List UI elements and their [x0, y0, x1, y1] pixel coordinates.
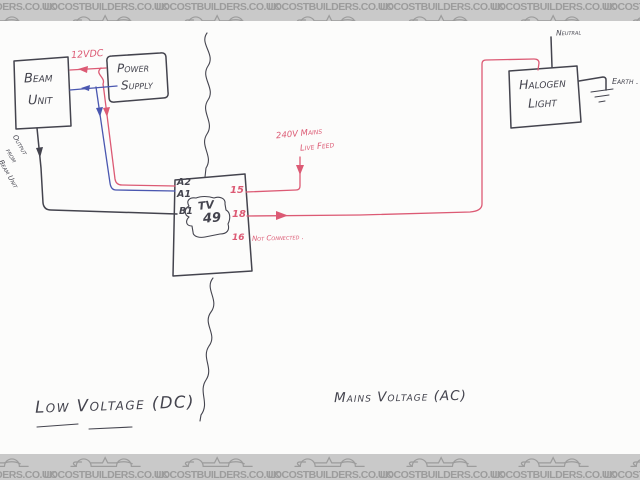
- relay-terminal-15: 15: [230, 186, 244, 196]
- arrowhead-coil-red: [103, 107, 110, 117]
- watermark-item: LOCOSTBUILDERS.CO.UK: [50, 454, 162, 480]
- relay-terminal-b1: B1: [179, 207, 193, 217]
- power-supply-label-line1: Power: [117, 61, 149, 74]
- arrowhead-beam-output: [36, 147, 43, 158]
- halogen-label-line1: Halogen: [519, 77, 566, 92]
- beam-unit-label-line2: Unit: [28, 94, 53, 108]
- watermark-text: LOCOSTBUILDERS.CO.UK: [268, 469, 392, 480]
- arrowhead-switched-live: [276, 211, 288, 220]
- underline-low: [37, 424, 78, 427]
- zone-mains-voltage-label: Mains Voltage (AC): [334, 390, 467, 406]
- car-icon: [176, 455, 260, 469]
- earth-label: Earth .: [612, 78, 639, 86]
- relay-terminal-18: 18: [232, 210, 246, 220]
- relay-logo-line2: 49: [203, 211, 222, 225]
- watermark-text: LOCOSTBUILDERS.CO.UK: [156, 469, 280, 480]
- arrowhead-12v-left: [78, 66, 88, 73]
- car-icon: [624, 455, 640, 469]
- watermark-item: LOCOSTBUILDERS.CO.UK: [498, 454, 610, 480]
- wire-coil-blue: [96, 87, 175, 191]
- separator-wavy-bottom: [200, 278, 214, 421]
- wire-earth: [579, 77, 606, 90]
- wire-beam-output: [37, 128, 177, 214]
- supply-voltage-label: 12VDC: [71, 49, 104, 61]
- relay-terminal-16: 16: [232, 234, 245, 243]
- underline-voltage: [89, 427, 132, 429]
- halogen-label-line2: Light: [528, 96, 557, 110]
- earth-ground-icon: [591, 89, 613, 102]
- arrowhead-coil-blue: [96, 107, 103, 117]
- watermark-text: LOCOSTBUILDERS.CO.UK: [604, 469, 640, 480]
- arrowhead-live-feed: [296, 165, 304, 175]
- wire-mains-live-feed: [246, 157, 300, 192]
- watermark-item: LOCOSTBUILDERS.CO.UK: [162, 454, 274, 480]
- relay-logo-line1: TV: [197, 199, 214, 212]
- car-icon: [0, 455, 36, 469]
- relay-terminal-a2: A2: [177, 178, 191, 188]
- neutral-label: Neutral: [556, 29, 581, 37]
- wire-12v-negative: [70, 86, 117, 90]
- watermark-item: LOCOSTBUILDERS.CO.UK: [386, 454, 498, 480]
- arrowhead-12v-blue: [81, 85, 90, 91]
- car-icon: [288, 455, 372, 469]
- watermark-banner-bottom: LOCOSTBUILDERS.CO.UK LOCOSTBUILDERS.CO.U…: [0, 454, 640, 480]
- watermark-text: LOCOSTBUILDERS.CO.UK: [492, 469, 616, 480]
- watermark-item: LOCOSTBUILDERS.CO.UK: [610, 454, 640, 480]
- relay-terminal-a1: A1: [177, 190, 191, 200]
- watermark-text: LOCOSTBUILDERS.CO.UK: [44, 469, 168, 480]
- watermark-item: LOCOSTBUILDERS.CO.UK: [0, 454, 50, 480]
- car-icon: [64, 455, 148, 469]
- watermark-row: LOCOSTBUILDERS.CO.UK LOCOSTBUILDERS.CO.U…: [0, 454, 640, 480]
- car-icon: [512, 455, 596, 469]
- watermark-item: LOCOSTBUILDERS.CO.UK: [274, 454, 386, 480]
- beam-unit-label-line1: Beam: [24, 72, 53, 86]
- car-icon: [400, 455, 484, 469]
- wire-neutral: [551, 37, 552, 67]
- power-supply-label-line2: Supply: [121, 78, 153, 91]
- watermark-text: LOCOSTBUILDERS.CO.UK: [380, 469, 504, 480]
- separator-wavy-top: [205, 33, 211, 177]
